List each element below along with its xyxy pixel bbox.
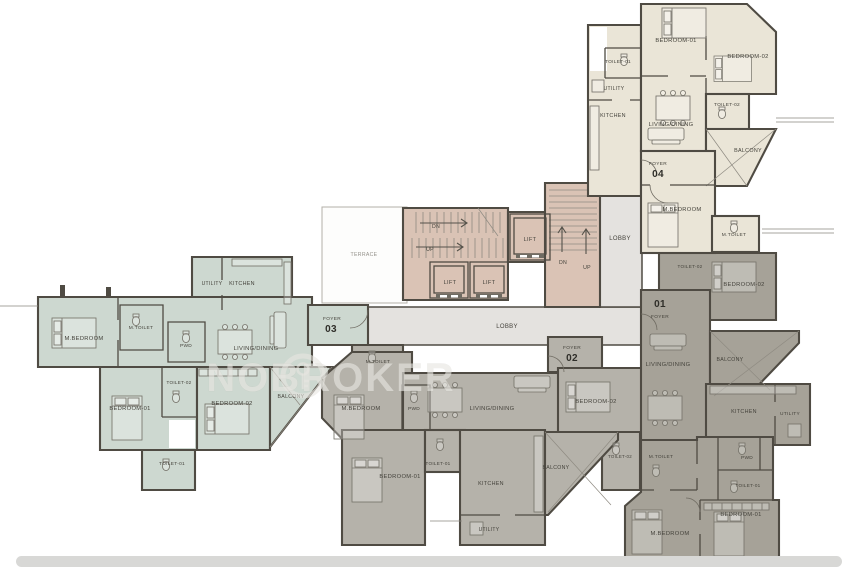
unit-02-label-bedroom-02: BEDROOM-02 <box>575 399 616 405</box>
floor-plan-svg: DNUPLIFTLIFTLIFTDNUP UTILITYKITCHENM.BED… <box>0 0 842 568</box>
unit-04-label-foyer: FOYER <box>649 161 667 167</box>
stair-lift-core: DNUPLIFTLIFTLIFTDNUP <box>403 183 600 307</box>
unit-02-label-toilet-02: TOILET-02 <box>608 454 632 459</box>
watermark: NOBROKER <box>206 356 455 400</box>
watermark-text: NOBROKER <box>206 356 455 400</box>
unit-01-label-kitchen: KITCHEN <box>731 409 757 415</box>
core-label-up: UP <box>426 247 434 253</box>
core-label-dn: DN <box>432 224 440 230</box>
wall-post <box>60 285 65 298</box>
core-label-lift: LIFT <box>524 237 537 243</box>
unit-03-label-utility: UTILITY <box>202 281 223 287</box>
unit-02-label-toilet-01: TOILET-01 <box>425 461 450 466</box>
unit-01-label-m-toilet: M.TOILET <box>649 454 673 460</box>
core-label-dn: DN <box>559 260 567 266</box>
core-label-up: UP <box>583 265 591 271</box>
unit-03-label-bedroom-01: BEDROOM-01 <box>109 406 150 412</box>
unit-02-label-m-bedroom: M.BEDROOM <box>341 406 380 412</box>
unit-03-label-pwd: PWD <box>180 343 192 349</box>
unit-02-label-kitchen: KITCHEN <box>478 481 504 487</box>
unit-01-label-bedroom-02: BEDROOM-02 <box>723 282 764 288</box>
unit-04-label-m-bedroom: M.BEDROOM <box>662 207 701 213</box>
unit-02-label-bedroom-01: BEDROOM-01 <box>379 474 420 480</box>
unit-04-label-bedroom-02: BEDROOM-02 <box>727 54 768 60</box>
unit-01-label-utility: UTILITY <box>780 411 800 417</box>
unit-01-label-toilet-02: TOILET-02 <box>677 264 702 269</box>
unit-03-label-m-bedroom: M.BEDROOM <box>64 336 103 342</box>
unit-02-label-utility: UTILITY <box>479 527 500 533</box>
unit-03-label-m-toilet: M.TOILET <box>129 325 153 331</box>
floor-plan-image: DNUPLIFTLIFTLIFTDNUP UTILITYKITCHENM.BED… <box>0 0 842 568</box>
unit-03-label-foyer: FOYER <box>323 316 341 322</box>
unit-01-label-living-dining: LIVING/DINING <box>646 362 691 368</box>
core-label-lift: LIFT <box>444 280 457 286</box>
common-label-lobby: LOBBY <box>496 324 518 330</box>
unit-03-label-bedroom-02: BEDROOM-02 <box>211 401 252 407</box>
unit-04-label-bedroom-01: BEDROOM-01 <box>655 38 696 44</box>
unit-02-label-living-dining: LIVING/DINING <box>470 406 515 412</box>
unit-03-label-kitchen: KITCHEN <box>229 281 255 287</box>
unit-02-label-02: 02 <box>566 353 578 364</box>
unit-03-label-living-dining: LIVING/DINING <box>234 346 279 352</box>
unit-04-label-toilet-01: TOILET-01 <box>605 59 631 65</box>
unit-04-label-toilet-02: TOILET-02 <box>714 102 740 108</box>
unit-04-label-utility: UTILITY <box>604 86 625 92</box>
common-label-lobby: LOBBY <box>609 236 631 242</box>
unit-01: TOILET-02BEDROOM-0201FOYERLIVING/DININGB… <box>625 253 810 566</box>
unit-01-label-balcony: BALCONY <box>717 357 744 363</box>
unit-01-label-bedroom-01: BEDROOM-01 <box>720 512 761 518</box>
unit-01-label-01: 01 <box>654 299 666 310</box>
unit-04-label-living-dining: LIVING/DINING <box>649 122 694 128</box>
unit-03-label-toilet-01: TOILET-01 <box>159 461 185 467</box>
unit-01-label-m-bedroom: M.BEDROOM <box>650 531 689 537</box>
unit-04-label-kitchen: KITCHEN <box>600 113 626 119</box>
unit-03-label-03: 03 <box>325 324 337 335</box>
unit-04-label-m-toilet: M.TOILET <box>722 232 746 238</box>
unit-01-label-foyer: FOYER <box>651 314 669 320</box>
unit-02-label-balcony: BALCONY <box>543 465 570 471</box>
unit-03-label-toilet-02: TOILET-02 <box>166 380 191 385</box>
unit-02-label-pwd: PWD <box>408 406 420 412</box>
unit-01-label-toilet-01: TOILET-01 <box>735 483 760 488</box>
wall-post <box>106 287 111 298</box>
unit-02-label-foyer: FOYER <box>563 345 581 351</box>
horizontal-scrollbar[interactable] <box>16 556 842 567</box>
unit-04-label-04: 04 <box>652 169 664 180</box>
unit-03-foyer-area <box>308 305 368 345</box>
unit-01-label-pwd: PWD <box>741 455 753 461</box>
common-label-terrace: TERRACE <box>351 252 378 258</box>
unit-04-label-balcony: BALCONY <box>734 148 762 154</box>
core-label-lift: LIFT <box>483 280 496 286</box>
